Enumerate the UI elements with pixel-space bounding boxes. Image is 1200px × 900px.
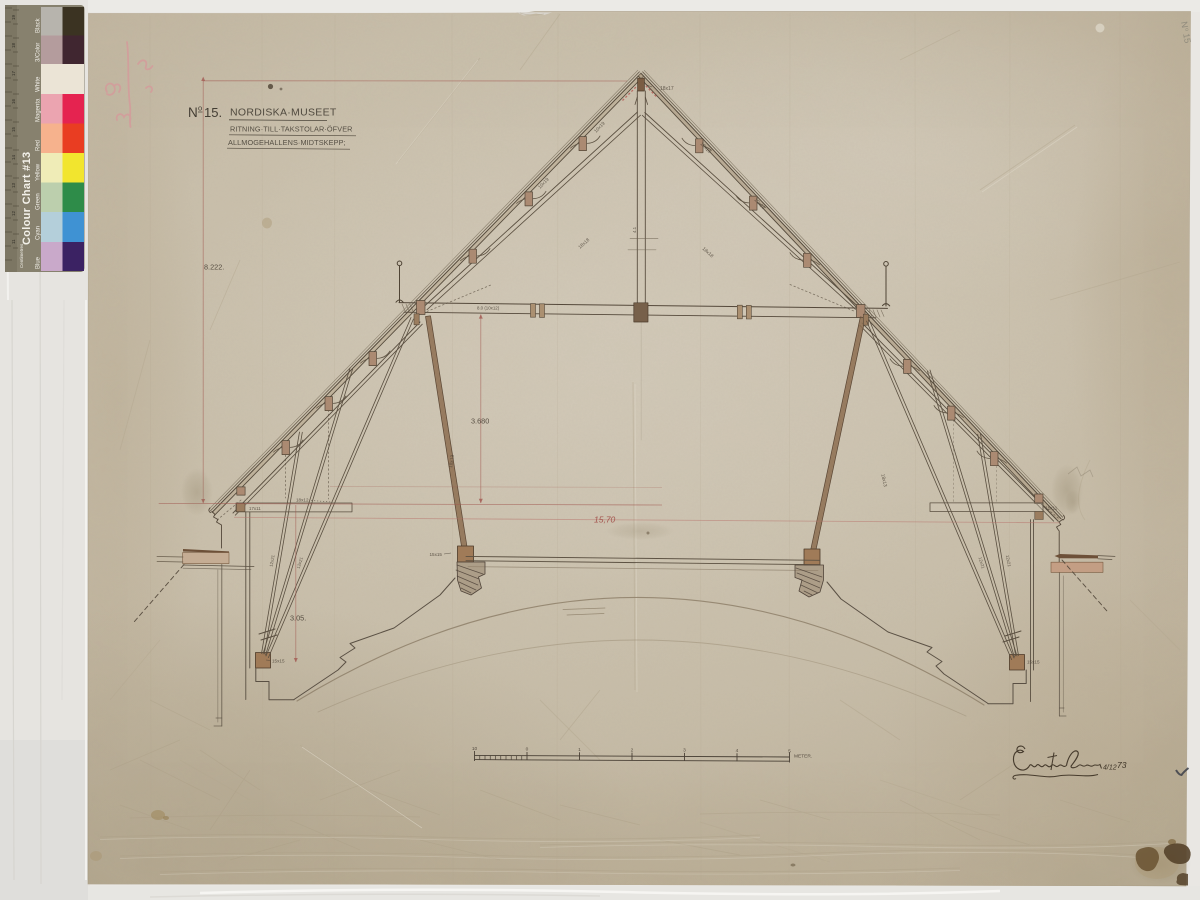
svg-text:12: 12 <box>11 210 16 216</box>
svg-text:19: 19 <box>11 14 16 20</box>
svg-text:Red: Red <box>36 140 42 151</box>
svg-text:Black: Black <box>36 17 42 33</box>
svg-text:15: 15 <box>1181 32 1193 44</box>
svg-text:3: 3 <box>683 748 686 754</box>
svg-text:ALLMOGEHALLENS·MIDTSKEPP;: ALLMOGEHALLENS·MIDTSKEPP; <box>228 138 346 147</box>
svg-text:17x11: 17x11 <box>249 506 261 511</box>
svg-text:3/Color: 3/Color <box>36 43 42 62</box>
svg-text:Yellow: Yellow <box>36 163 42 181</box>
svg-text:14: 14 <box>11 154 16 160</box>
svg-text:0: 0 <box>526 747 529 753</box>
svg-text:10: 10 <box>472 746 478 752</box>
svg-text:16: 16 <box>11 98 16 104</box>
svg-text:15,70: 15,70 <box>594 515 616 525</box>
svg-text:Green: Green <box>36 193 42 210</box>
svg-text:RITNING·TILL·TAKSTOLAR·ÖFVER: RITNING·TILL·TAKSTOLAR·ÖFVER <box>230 125 353 134</box>
svg-text:15.: 15. <box>204 105 222 120</box>
svg-text:18x17: 18x17 <box>660 86 674 92</box>
svg-text:8.0 (10x12): 8.0 (10x12) <box>477 306 500 311</box>
svg-text:2: 2 <box>631 747 634 753</box>
svg-text:13: 13 <box>11 182 16 188</box>
svg-text:11: 11 <box>11 239 16 244</box>
svg-text:15x15: 15x15 <box>429 552 442 557</box>
svg-text:Colour Chart #13: Colour Chart #13 <box>21 152 33 245</box>
svg-text:N: N <box>188 105 198 120</box>
svg-text:Centimetres: Centimetres <box>19 243 24 268</box>
svg-text:o: o <box>198 104 202 113</box>
svg-text:Cyan: Cyan <box>36 226 42 240</box>
svg-text:Magenta: Magenta <box>36 98 42 122</box>
svg-text:1: 1 <box>578 747 581 753</box>
svg-text:73: 73 <box>1117 760 1127 770</box>
svg-text:METER.: METER. <box>794 754 812 760</box>
svg-text:NORDISKA·MUSEET: NORDISKA·MUSEET <box>230 107 337 119</box>
svg-text:White: White <box>36 76 42 92</box>
svg-text:15x15: 15x15 <box>1027 660 1040 665</box>
svg-text:15: 15 <box>11 126 16 132</box>
svg-text:18: 18 <box>11 42 16 48</box>
svg-text:4: 4 <box>736 748 739 754</box>
svg-text:15x15: 15x15 <box>272 659 285 664</box>
svg-text:5: 5 <box>788 748 791 754</box>
svg-text:8.222.: 8.222. <box>204 263 224 272</box>
svg-text:3.05.: 3.05. <box>290 614 306 623</box>
svg-text:4.1: 4.1 <box>632 226 637 233</box>
svg-text:17: 17 <box>11 70 16 76</box>
svg-text:3.680: 3.680 <box>471 417 489 426</box>
svg-text:4/12: 4/12 <box>1103 765 1117 772</box>
svg-text:18x12: 18x12 <box>296 498 309 503</box>
svg-text:Blue: Blue <box>36 256 42 269</box>
